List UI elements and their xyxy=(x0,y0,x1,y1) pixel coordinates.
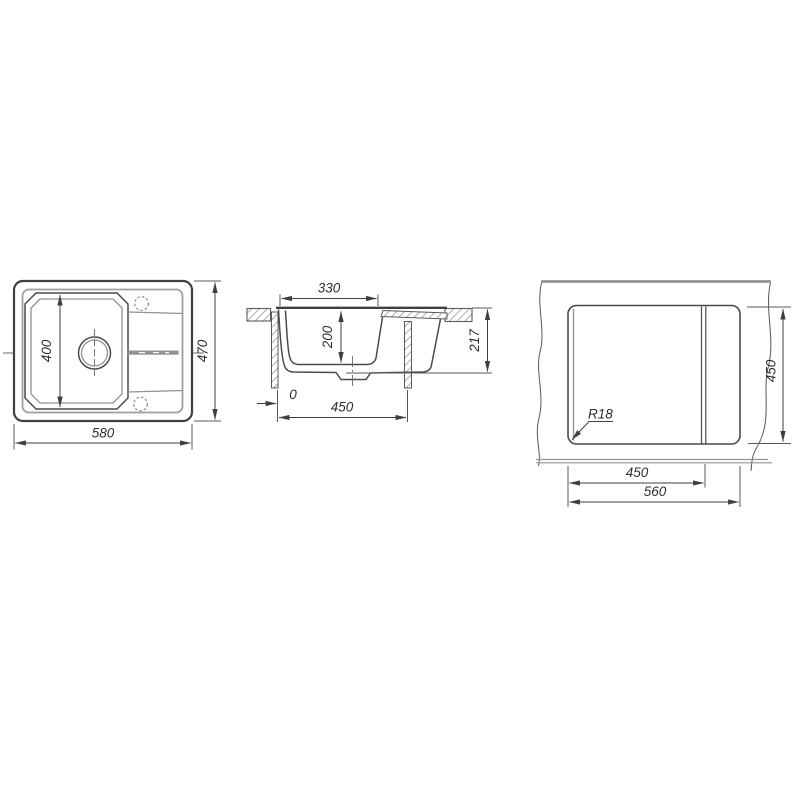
dim-label-cutout-depth: 450 xyxy=(764,359,779,382)
cabinet-wall-right xyxy=(405,322,412,389)
bowl-profile-outer xyxy=(279,310,441,380)
dim-label-total-height: 217 xyxy=(467,329,482,353)
cabinet-wall-left xyxy=(272,312,279,388)
dim-label-cabinet-width: 450 xyxy=(331,400,354,415)
cutout-outline xyxy=(568,306,740,445)
dim-label-main-cutout-width: 450 xyxy=(626,465,649,480)
dim-label-bowl-length: 400 xyxy=(39,339,54,362)
dim-label-overall-depth: 470 xyxy=(195,339,210,362)
sink-top-view: 400 580 470 xyxy=(3,281,221,450)
countertop-cutout-view: R18 450 450 560 xyxy=(536,282,791,508)
dim-label-bowl-depth: 200 xyxy=(320,325,335,349)
countertop-section-left xyxy=(247,309,271,322)
dim-label-bowl-top-width: 330 xyxy=(318,281,341,296)
technical-drawing-page: 400 580 470 330 200 xyxy=(0,0,800,800)
dim-label-overall-width: 580 xyxy=(92,426,115,441)
sink-cross-section: 330 200 217 0 450 xyxy=(247,281,492,423)
drainboard-section xyxy=(381,311,447,320)
sink-drawing-svg: 400 580 470 330 200 xyxy=(0,0,800,800)
dim-label-cutout-width: 560 xyxy=(644,484,667,499)
break-line-left xyxy=(537,283,542,466)
dim-label-corner-radius: R18 xyxy=(588,407,613,422)
dim-label-edge-offset: 0 xyxy=(289,387,297,402)
countertop-section-right xyxy=(445,309,472,322)
overflow-slot xyxy=(127,351,179,355)
